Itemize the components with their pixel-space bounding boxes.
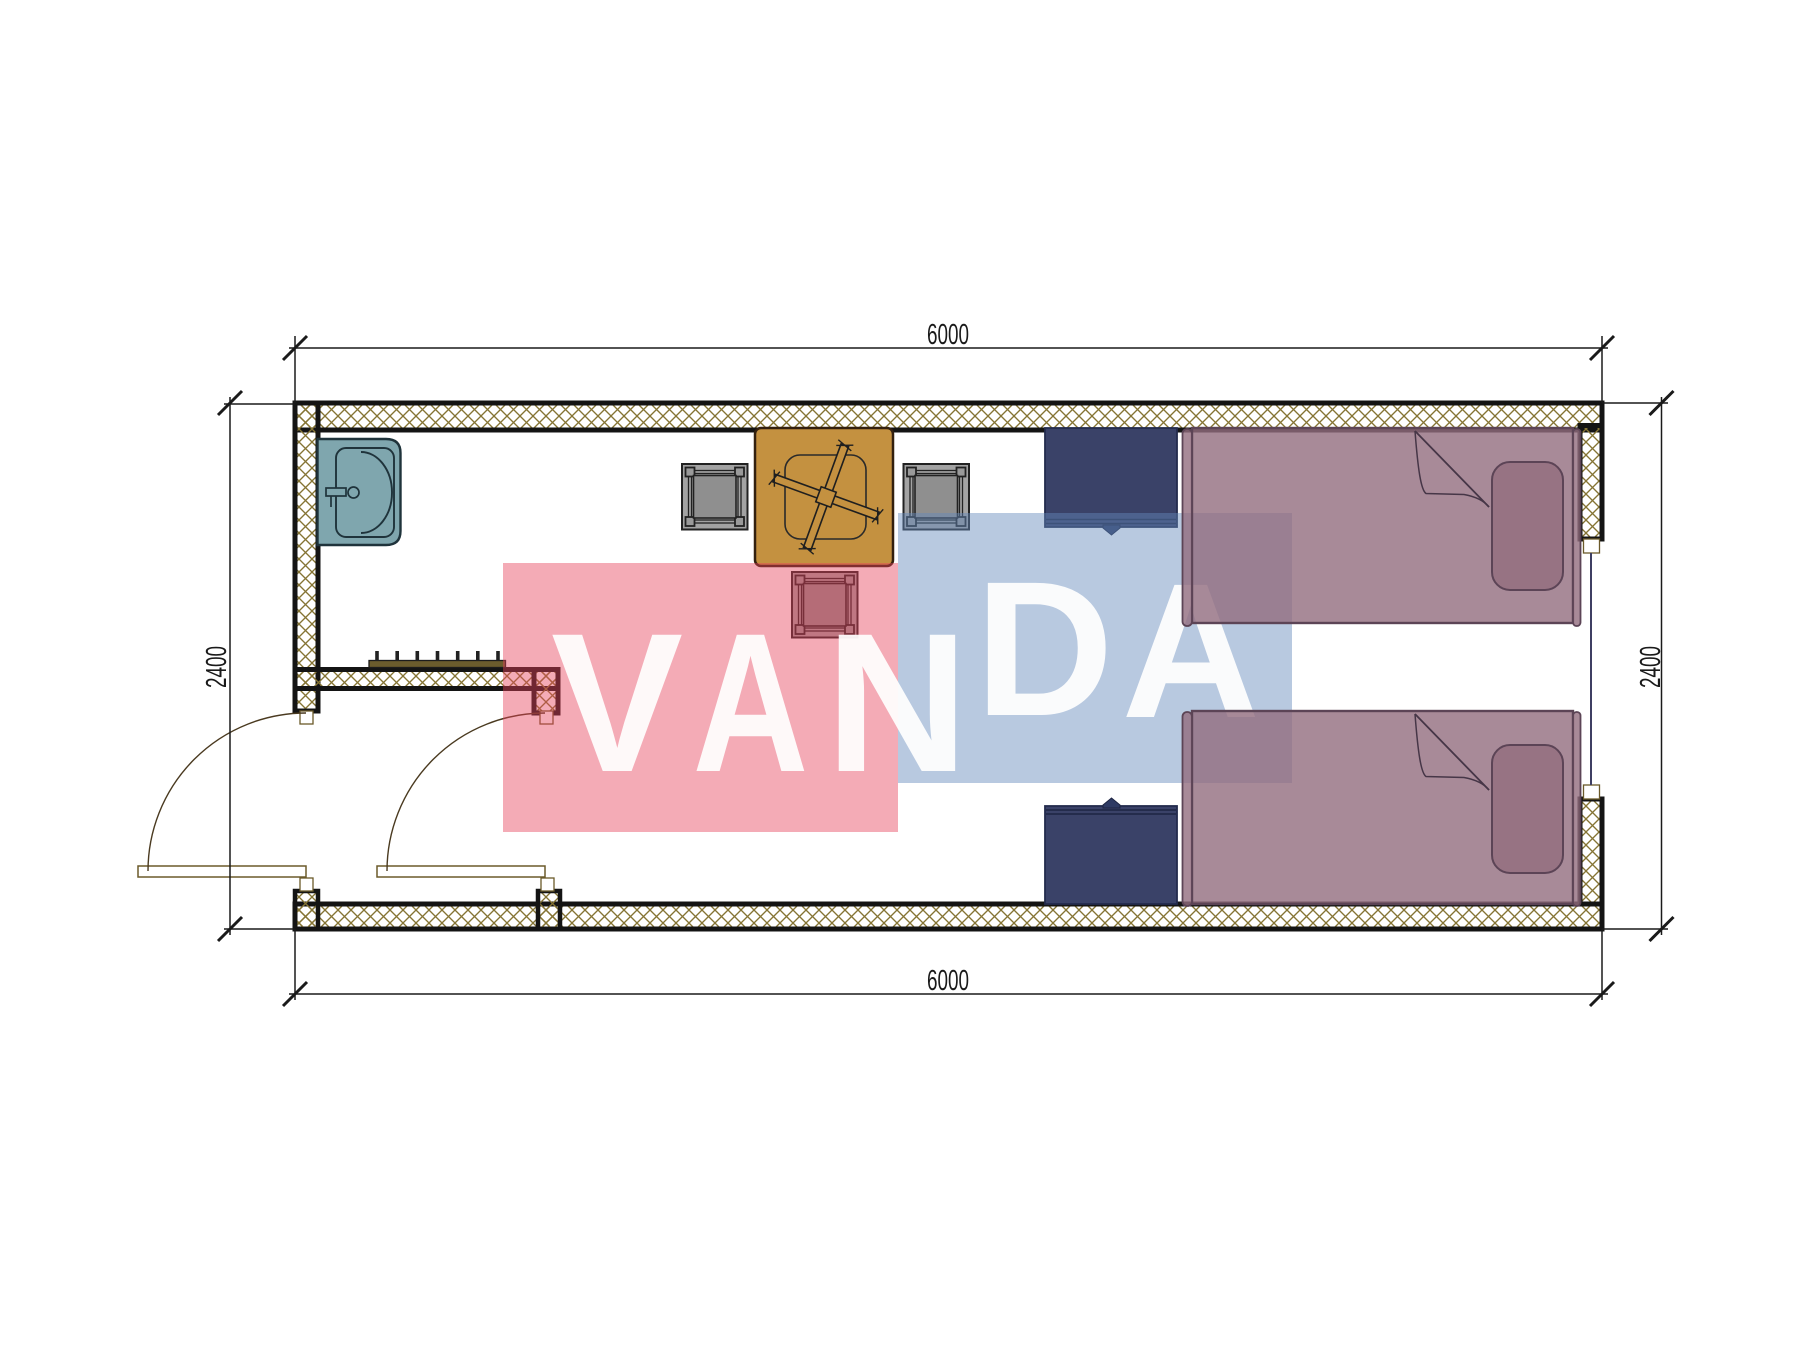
- svg-text:6000: 6000: [927, 319, 969, 351]
- svg-text:2400: 2400: [1635, 646, 1667, 688]
- svg-text:V: V: [551, 592, 683, 813]
- svg-text:D: D: [975, 541, 1114, 756]
- svg-text:A: A: [693, 592, 809, 813]
- svg-text:6000: 6000: [927, 965, 969, 997]
- svg-text:N: N: [826, 592, 969, 813]
- svg-text:2400: 2400: [201, 646, 233, 688]
